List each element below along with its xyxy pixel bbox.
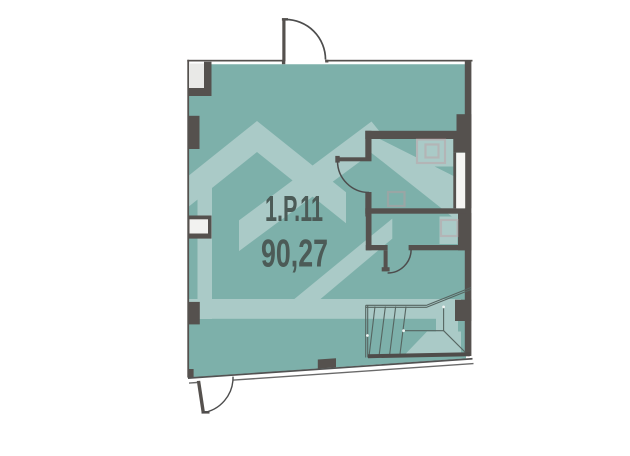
svg-text:90,27: 90,27 (261, 233, 328, 276)
svg-text:1.Р.11: 1.Р.11 (265, 189, 323, 229)
